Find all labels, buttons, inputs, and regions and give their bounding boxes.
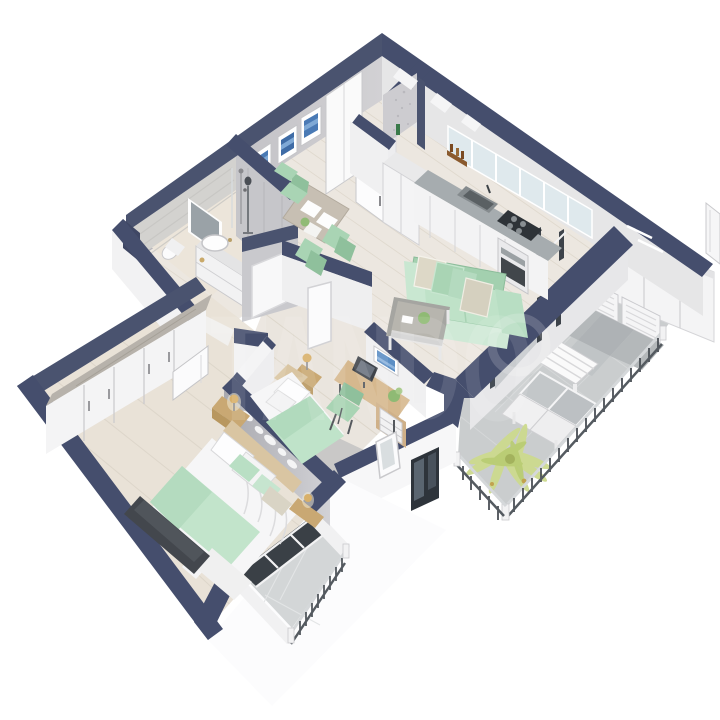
svg-text:TANDO: TANDO xyxy=(210,285,534,452)
